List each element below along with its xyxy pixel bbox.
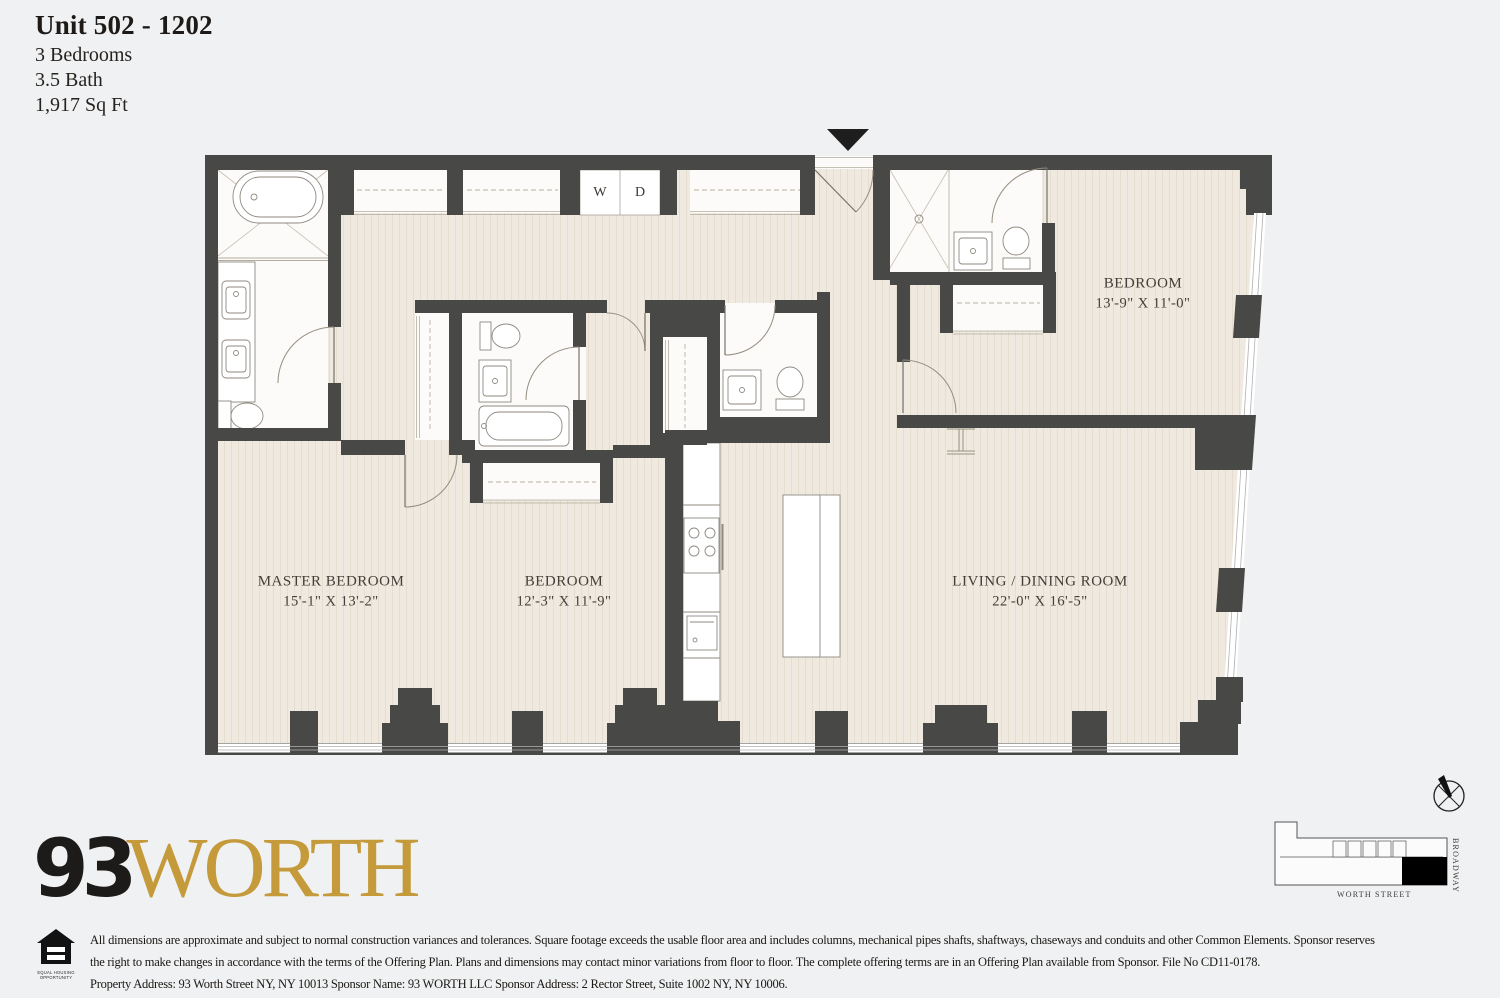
- brand-logo: 93WORTH: [33, 822, 416, 937]
- bathtub-icon: [233, 171, 323, 223]
- disclaimer: All dimensions are approximate and subje…: [90, 929, 1475, 995]
- label-master-bedroom: MASTER BEDROOM 15'-1" X 13'-2": [258, 574, 405, 611]
- label-bedroom-2: BEDROOM 12'-3" X 11'-9": [517, 574, 612, 611]
- room-dims: 22'-0" X 16'-5": [952, 594, 1127, 611]
- broadway-label: BROADWAY: [1451, 838, 1460, 893]
- room-dims: 15'-1" X 13'-2": [258, 594, 405, 611]
- unit-location-marker: [1402, 857, 1447, 885]
- room-dims: 13'-9" X 11'-0": [1096, 296, 1191, 313]
- room-name: MASTER BEDROOM: [258, 574, 405, 591]
- washer-label: W: [593, 185, 606, 201]
- bathtub-icon: [479, 406, 569, 446]
- label-living-dining: LIVING / DINING ROOM 22'-0" X 16'-5": [952, 574, 1127, 611]
- vanity-double-sink-icon: [218, 262, 255, 402]
- stove-icon: [684, 518, 723, 573]
- kitchen-island: [783, 495, 840, 657]
- toilet-icon: [1003, 227, 1030, 269]
- toilet-icon: [776, 367, 804, 410]
- room-name: LIVING / DINING ROOM: [952, 574, 1127, 591]
- worth-street-label: WORTH STREET: [1337, 890, 1412, 899]
- entry-sill: [815, 156, 873, 169]
- toilet-icon: [480, 322, 520, 350]
- dishwasher-icon: [687, 616, 717, 650]
- disclaimer-line-3: Property Address: 93 Worth Street NY, NY…: [90, 973, 1475, 995]
- room-name: BEDROOM: [517, 574, 612, 591]
- dryer-label: D: [635, 185, 645, 201]
- floorplan-page: Unit 502 - 1202 3 Bedrooms 3.5 Bath 1,91…: [0, 0, 1500, 998]
- equal-housing-caption: EQUAL HOUSING OPPORTUNITY: [33, 971, 79, 980]
- room-name: BEDROOM: [1096, 276, 1191, 293]
- toilet-icon: [218, 401, 263, 431]
- entry-triangle-icon: [827, 129, 869, 151]
- disclaimer-line-1: All dimensions are approximate and subje…: [90, 929, 1475, 951]
- logo-name: WORTH: [126, 819, 416, 915]
- sink-icon: [479, 360, 511, 402]
- building-footprint: [1275, 822, 1447, 885]
- equal-housing-logo: EQUAL HOUSING OPPORTUNITY: [33, 928, 79, 980]
- compass-icon: [1434, 775, 1464, 811]
- sink-icon: [954, 232, 992, 270]
- room-dims: 12'-3" X 11'-9": [517, 594, 612, 611]
- logo-number: 93: [33, 822, 130, 915]
- sink-icon: [723, 370, 761, 410]
- equal-housing-house-icon: [36, 928, 76, 965]
- disclaimer-line-2: the right to make changes in accordance …: [90, 951, 1475, 973]
- label-bedroom-3: BEDROOM 13'-9" X 11'-0": [1096, 276, 1191, 313]
